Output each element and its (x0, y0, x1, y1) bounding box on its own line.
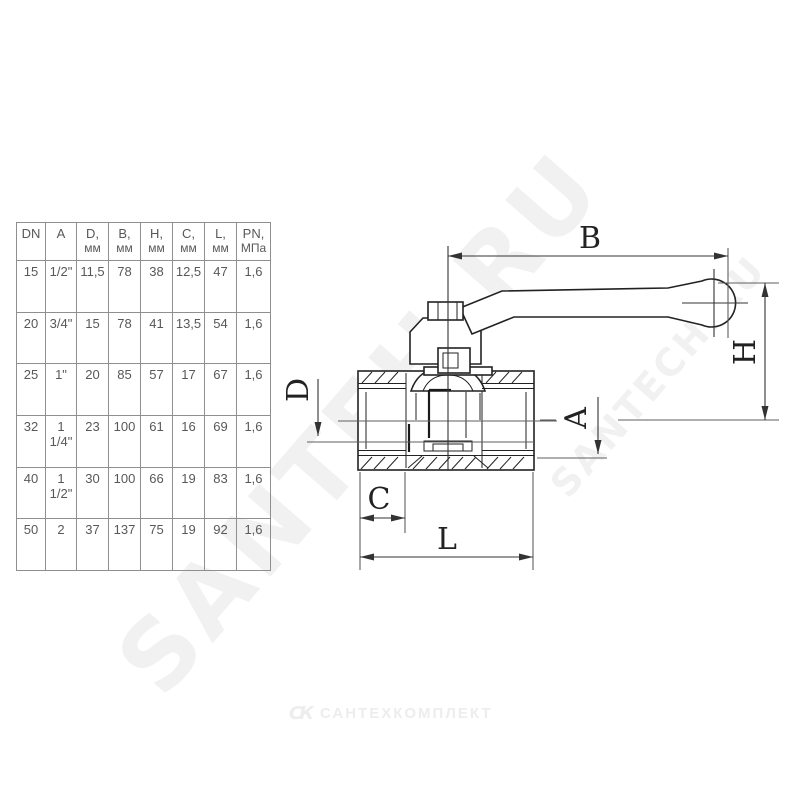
table-cell: 137 (109, 519, 141, 571)
table-cell: 83 (205, 467, 237, 519)
column-header-unit: МПа (237, 242, 270, 256)
table-cell: 23 (77, 416, 109, 468)
dimension-l: L (360, 522, 533, 561)
table-cell: 78 (109, 261, 141, 313)
watermark-small: SANTECH.RU (542, 247, 775, 506)
dim-label-c: C (368, 482, 391, 517)
table-cell: 66 (141, 467, 173, 519)
table-cell: 41 (141, 312, 173, 364)
table-cell: 16 (173, 416, 205, 468)
table-cell: 92 (205, 519, 237, 571)
table-cell: 61 (141, 416, 173, 468)
table-cell: 100 (109, 467, 141, 519)
table-cell: 15 (77, 312, 109, 364)
table-cell: 47 (205, 261, 237, 313)
column-header: H,мм (141, 223, 173, 261)
table-cell: 50 (17, 519, 46, 571)
table-cell: 17 (173, 364, 205, 416)
table-cell: 13,5 (173, 312, 205, 364)
table-cell: 69 (205, 416, 237, 468)
table-cell: 1 1/4" (46, 416, 77, 468)
table-cell: 1,6 (237, 261, 271, 313)
table-cell: 32 (17, 416, 46, 468)
table-body: 151/2"11,5783812,5471,6203/4"15784113,55… (17, 261, 271, 571)
table-cell: 57 (141, 364, 173, 416)
column-header: C,мм (173, 223, 205, 261)
column-header-unit: мм (141, 242, 172, 256)
table-cell: 30 (77, 467, 109, 519)
table-row: 502371377519921,6 (17, 519, 271, 571)
table-cell: 1" (46, 364, 77, 416)
column-header: B,мм (109, 223, 141, 261)
column-header: D,мм (77, 223, 109, 261)
column-header: DN (17, 223, 46, 261)
table-cell: 12,5 (173, 261, 205, 313)
table-cell: 100 (109, 416, 141, 468)
table-cell: 1 1/2" (46, 467, 77, 519)
table-cell: 1,6 (237, 519, 271, 571)
column-header-unit: мм (77, 242, 108, 256)
table-cell: 67 (205, 364, 237, 416)
table-row: 203/4"15784113,5541,6 (17, 312, 271, 364)
dimensions-table: DNAD,ммB,ммH,ммC,ммL,ммPN,МПа 151/2"11,5… (16, 222, 271, 571)
page: { "colors": { "background": "#ffffff", "… (0, 0, 800, 800)
dim-label-h: H (728, 339, 763, 365)
table-cell: 19 (173, 467, 205, 519)
column-header: PN,МПа (237, 223, 271, 261)
table-cell: 20 (17, 312, 46, 364)
table-cell: 11,5 (77, 261, 109, 313)
footer-logo-text: САНТЕХКОМПЛЕКТ (320, 705, 493, 722)
table-cell: 19 (173, 519, 205, 571)
table-cell: 85 (109, 364, 141, 416)
table-cell: 1,6 (237, 312, 271, 364)
santehkomplekt-logo-icon: СК (289, 703, 311, 724)
table-row: 401 1/2"301006619831,6 (17, 467, 271, 519)
table-header: DNAD,ммB,ммH,ммC,ммL,ммPN,МПа (17, 223, 271, 261)
table-cell: 54 (205, 312, 237, 364)
table-row: 321 1/4"231006116691,6 (17, 416, 271, 468)
table-cell: 75 (141, 519, 173, 571)
table-cell: 2 (46, 519, 77, 571)
column-header-unit: мм (109, 242, 140, 256)
stem-nut (428, 302, 463, 320)
dimension-c: C (360, 482, 405, 522)
table-cell: 1,6 (237, 364, 271, 416)
table-cell: 20 (77, 364, 109, 416)
column-header: L,мм (205, 223, 237, 261)
column-header-unit: мм (173, 242, 204, 256)
table-row: 151/2"11,5783812,5471,6 (17, 261, 271, 313)
dim-label-b: B (579, 221, 601, 256)
table-cell: 40 (17, 467, 46, 519)
table-row: 251"20855717671,6 (17, 364, 271, 416)
dim-label-a: A (559, 407, 594, 430)
table-cell: 1,6 (237, 416, 271, 468)
column-header-unit: мм (205, 242, 236, 256)
footer-logo: СК САНТЕХКОМПЛЕКТ (289, 703, 493, 724)
table-cell: 1,6 (237, 467, 271, 519)
table-cell: 3/4" (46, 312, 77, 364)
table-cell: 25 (17, 364, 46, 416)
table-cell: 38 (141, 261, 173, 313)
dim-label-d: D (281, 378, 316, 402)
table-cell: 15 (17, 261, 46, 313)
table-cell: 37 (77, 519, 109, 571)
column-header: A (46, 223, 77, 261)
dim-label-l: L (437, 522, 457, 557)
table-cell: 78 (109, 312, 141, 364)
table-cell: 1/2" (46, 261, 77, 313)
